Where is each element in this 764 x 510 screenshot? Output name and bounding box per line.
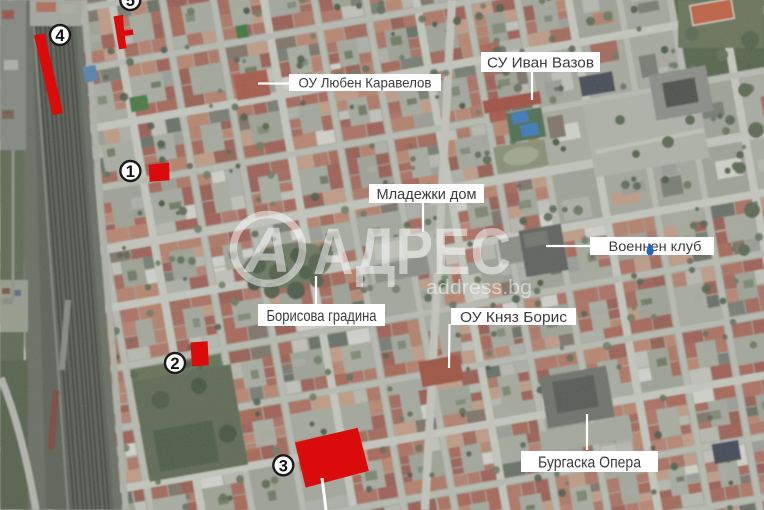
svg-text:A: A xyxy=(243,214,291,286)
svg-text:address.bg: address.bg xyxy=(426,277,532,299)
svg-text:Военнен клуб: Военнен клуб xyxy=(609,238,702,254)
svg-text:ОУ Любен Каравелов: ОУ Любен Каравелов xyxy=(299,75,432,91)
svg-text:ОУ Княз Борис: ОУ Княз Борис xyxy=(460,309,568,326)
svg-text:2: 2 xyxy=(170,355,179,373)
svg-text:4: 4 xyxy=(55,27,65,45)
svg-text:СУ Иван Вазов: СУ Иван Вазов xyxy=(487,54,594,71)
svg-text:Борисова градина: Борисова градина xyxy=(267,308,377,325)
svg-text:Младежки дом: Младежки дом xyxy=(377,186,477,203)
svg-text:1: 1 xyxy=(126,163,135,181)
svg-text:Бургаска Опера: Бургаска Опера xyxy=(538,454,641,471)
svg-text:3: 3 xyxy=(279,457,288,475)
svg-text:5: 5 xyxy=(126,0,135,10)
